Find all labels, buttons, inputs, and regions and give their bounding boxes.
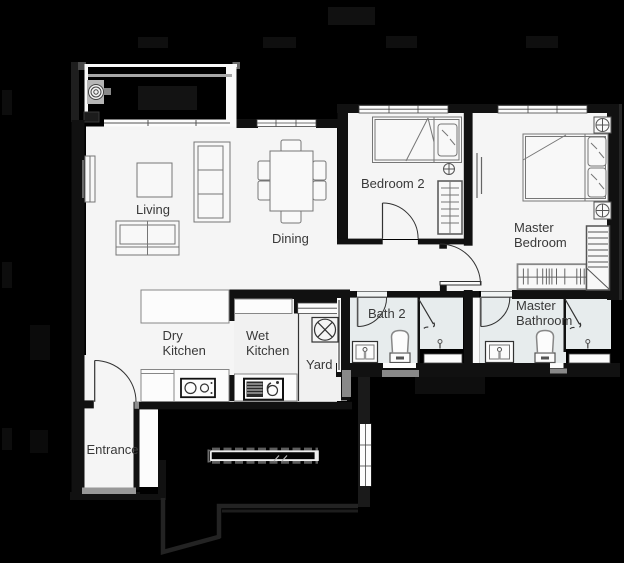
svg-text:Yard: Yard bbox=[306, 357, 333, 372]
svg-text:Kitchen: Kitchen bbox=[246, 343, 289, 358]
svg-text:Bath 2: Bath 2 bbox=[368, 306, 406, 321]
svg-text:Bedroom: Bedroom bbox=[514, 235, 567, 250]
svg-text:Bedroom 2: Bedroom 2 bbox=[361, 176, 425, 191]
svg-text:Living: Living bbox=[136, 202, 170, 217]
svg-text:Master: Master bbox=[516, 298, 556, 313]
svg-text:Dining: Dining bbox=[272, 231, 309, 246]
svg-text:Entrance: Entrance bbox=[87, 442, 139, 457]
svg-text:Dry: Dry bbox=[163, 328, 184, 343]
svg-text:Kitchen: Kitchen bbox=[163, 343, 206, 358]
svg-text:Wet: Wet bbox=[246, 328, 269, 343]
svg-text:Bathroom: Bathroom bbox=[516, 313, 572, 328]
svg-text:Master: Master bbox=[514, 220, 554, 235]
